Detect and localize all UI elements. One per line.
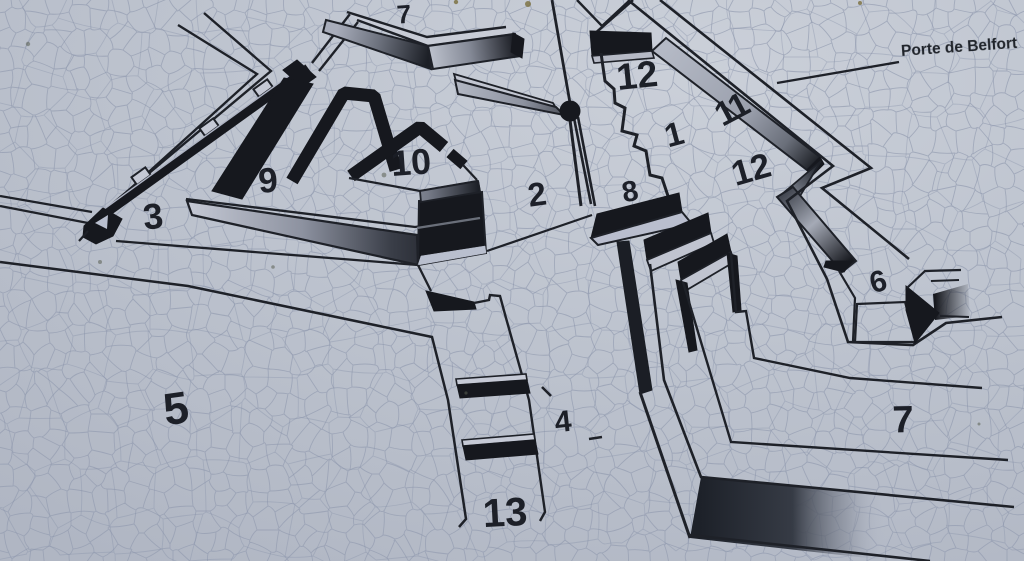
svg-text:9: 9 [257, 161, 279, 201]
svg-text:7: 7 [396, 0, 413, 30]
svg-text:13: 13 [482, 490, 529, 536]
svg-text:10: 10 [390, 140, 433, 184]
svg-text:3: 3 [141, 195, 165, 238]
svg-text:12: 12 [614, 53, 659, 98]
svg-text:7: 7 [892, 399, 914, 441]
